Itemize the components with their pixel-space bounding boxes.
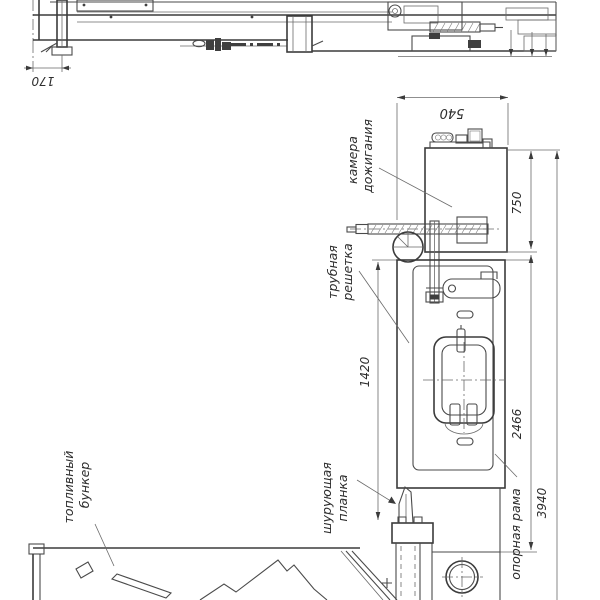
fuel-pile bbox=[200, 560, 327, 600]
dim-1420: 1420 bbox=[358, 262, 380, 520]
dim-right-group: 750 2466 3940 bbox=[434, 150, 560, 600]
handle-plate bbox=[443, 272, 500, 298]
dim-3940-text: 3940 bbox=[535, 487, 549, 518]
label-kamera: камера дожигания bbox=[345, 119, 452, 207]
label-toplivny-line1: топливный bbox=[61, 451, 76, 524]
label-planka-line1: шурующая bbox=[319, 462, 334, 534]
slot-upper bbox=[457, 311, 473, 318]
label-trubnaya-line1: трубная bbox=[325, 245, 340, 299]
slot-lower bbox=[457, 438, 473, 445]
label-planka: шурующая планка bbox=[319, 462, 350, 534]
drive-box bbox=[457, 217, 487, 243]
drawing-sheet: 170 540 камера дожигания bbox=[0, 0, 600, 600]
bunker-strip bbox=[112, 574, 171, 598]
plan-tube bbox=[287, 16, 323, 52]
dim-1420-text: 1420 bbox=[358, 356, 372, 387]
stoker-bar-assembly bbox=[341, 480, 433, 600]
dim-170-text: 170 bbox=[31, 74, 54, 88]
dim-540: 540 bbox=[397, 95, 508, 220]
fuel-bunker bbox=[29, 544, 360, 600]
stoker-bracket bbox=[392, 523, 433, 543]
plan-drive-assembly bbox=[388, 2, 503, 51]
plan-left-beam bbox=[41, 0, 72, 55]
label-kamera-line2: дожигания bbox=[360, 119, 375, 194]
support-frame bbox=[432, 488, 500, 600]
plan-view bbox=[33, 0, 556, 57]
label-rama-text: опорная рама bbox=[508, 488, 523, 579]
boiler-drawing: 170 540 камера дожигания bbox=[0, 0, 600, 600]
dim-540-text: 540 bbox=[440, 105, 465, 120]
label-trubnaya-line2: решетка bbox=[340, 243, 355, 301]
label-toplivny-line2: бункер bbox=[77, 462, 92, 509]
dim-2466-text: 2466 bbox=[510, 408, 524, 439]
boiler-body bbox=[372, 260, 533, 488]
dim-750-text: 750 bbox=[510, 191, 524, 214]
label-rama: опорная рама bbox=[495, 454, 523, 580]
bunker-chip bbox=[76, 562, 93, 578]
label-planka-line2: планка bbox=[335, 474, 350, 521]
label-kamera-line1: камера bbox=[345, 136, 360, 184]
